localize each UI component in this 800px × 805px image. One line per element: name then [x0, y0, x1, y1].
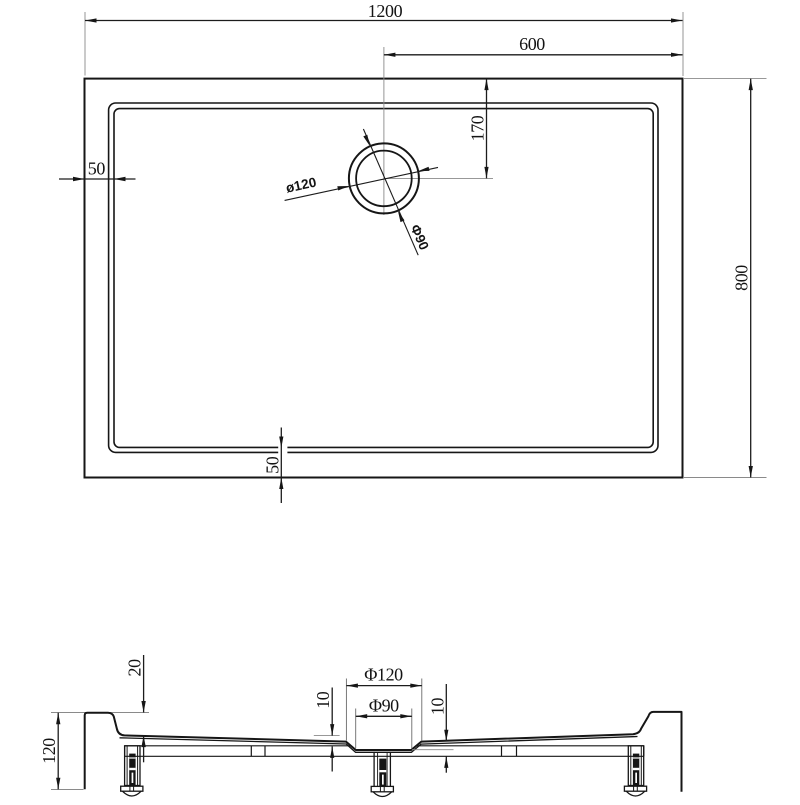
- svg-text:10: 10: [427, 698, 447, 716]
- svg-text:Φ90: Φ90: [408, 222, 432, 252]
- svg-text:10: 10: [313, 691, 333, 709]
- svg-text:600: 600: [519, 34, 545, 54]
- svg-text:1200: 1200: [368, 1, 403, 21]
- svg-text:50: 50: [88, 159, 106, 179]
- svg-text:20: 20: [125, 659, 145, 677]
- svg-text:120: 120: [39, 738, 59, 764]
- svg-text:50: 50: [262, 456, 282, 474]
- svg-text:800: 800: [732, 265, 752, 291]
- svg-text:ø120: ø120: [284, 175, 317, 196]
- svg-text:Φ120: Φ120: [364, 665, 403, 685]
- svg-text:170: 170: [468, 115, 488, 141]
- svg-text:Φ90: Φ90: [369, 696, 399, 716]
